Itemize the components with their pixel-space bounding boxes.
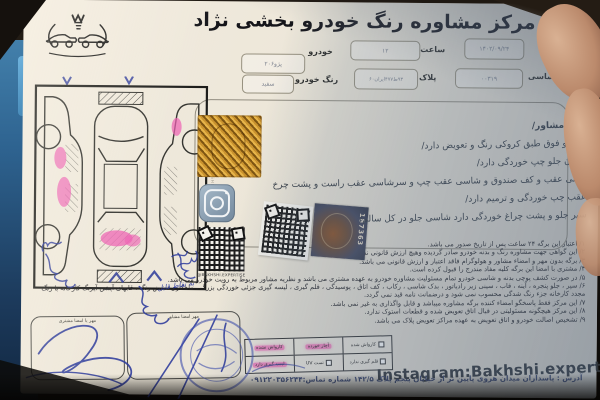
- car-label: خودرو: [308, 47, 333, 56]
- checklist-cell: لیسه گیری دارد: [246, 356, 294, 373]
- plate-value: ۹۳ط۴۷۷ایران۶۰: [369, 76, 403, 82]
- hour-label: ساعت: [420, 45, 445, 54]
- qr-code-icon: [198, 227, 244, 271]
- color-label: رنگ خودرو: [295, 75, 338, 84]
- customer-signature-box: مهر یا امضا مشتری: [30, 316, 125, 381]
- expertise-certificate: مرکز مشاوره رنگ خودرو بخشی نژاد تاریخ ۱۴…: [20, 0, 599, 399]
- checklist-label: تست UV: [306, 360, 324, 365]
- checklist-label: لیسه گیری دارد: [253, 361, 287, 367]
- gold-hologram-sticker-icon: [197, 115, 262, 178]
- condition-checklist: کارواش شده آچار خورده کارواش نشده قلم گی…: [244, 335, 393, 374]
- qr-code-block: @BAKHSHI.EXPERTISE: [195, 227, 247, 277]
- checklist-cell: آچار خورده: [293, 337, 342, 354]
- checklist-cell: تست UV: [294, 354, 343, 371]
- checkbox: [326, 360, 332, 366]
- date-box: ۱۴۰۲/۰۹/۲۴: [464, 38, 524, 60]
- instagram-dot: [225, 191, 228, 194]
- checklist-label: کارواش نشده: [254, 344, 285, 350]
- date-value: ۱۴۰۲/۰۹/۲۴: [479, 45, 509, 52]
- checkbox: [380, 358, 386, 364]
- consultant-signature-label: مهر امضا مشاور: [127, 314, 239, 321]
- color-box: سفید: [242, 74, 294, 93]
- car-box: پژو۲۰۶: [241, 53, 305, 74]
- checkbox: [378, 341, 384, 347]
- chassis-box: ۰۰۳۱۹: [455, 68, 523, 89]
- checklist-label: کارواش شده: [351, 342, 376, 348]
- checklist-cell: کارواش شده: [342, 336, 391, 353]
- instagram-lens: [210, 196, 224, 210]
- checklist-row: قلم گیری ندارد تست UV لیسه گیری دارد: [246, 353, 392, 373]
- plate-box: ۹۳ط۴۷۷ایران۶۰: [354, 68, 418, 90]
- qr-caption: @BAKHSHI.EXPERTISE: [195, 272, 247, 277]
- chassis-value: ۰۰۳۱۹: [481, 75, 497, 82]
- customer-signature-label: مهر یا امضا مشتری: [31, 319, 123, 325]
- checklist-label: آچار خورده: [306, 343, 331, 349]
- checklist-cell: کارواش نشده: [245, 339, 293, 356]
- consultant-notes: نظر مشاور/ خودرو فوق طبق کروکی رنگ و تعو…: [273, 116, 587, 230]
- plate-label: پلاک: [419, 73, 436, 82]
- car-value: پژو۲۰۶: [264, 60, 282, 67]
- dark-bottom-edge: [0, 374, 600, 400]
- hour-box: ۱۲: [350, 40, 420, 61]
- color-value: سفید: [261, 81, 274, 88]
- checklist-label: قلم گیری ندارد: [349, 359, 378, 365]
- page-title: مرکز مشاوره رنگ خودرو بخشی نژاد: [168, 9, 560, 34]
- terms-list: ۱/ اعتبار این برگه ۲۴ ساعت پس از تاریخ ص…: [33, 240, 585, 327]
- consultant-signature-box: مهر امضا مشاور: [126, 311, 241, 380]
- instagram-icon: [199, 184, 235, 222]
- hour-value: ۱۲: [382, 47, 389, 54]
- photo-of-document: مرکز مشاوره رنگ خودرو بخشی نژاد تاریخ ۱۴…: [0, 0, 600, 400]
- cars-crown-emblem-icon: [41, 12, 113, 61]
